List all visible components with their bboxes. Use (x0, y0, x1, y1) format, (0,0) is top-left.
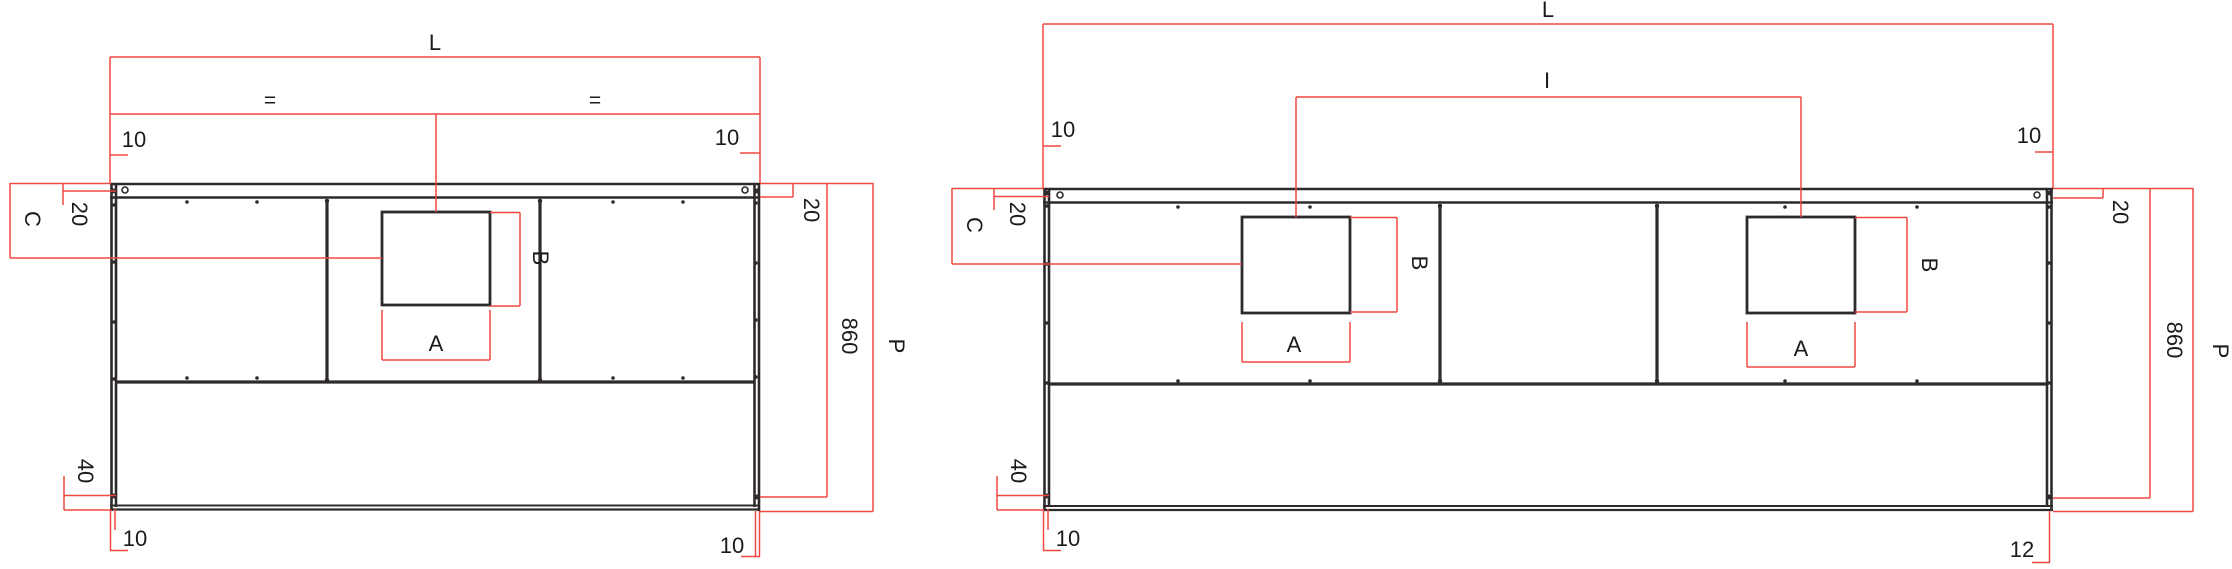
right-view-dimension-lines (952, 24, 2193, 563)
dim-label-equal-left: = (264, 89, 276, 112)
dim-label-length: L (1542, 0, 1554, 22)
dim-label-offset-bottom-right: 12 (2010, 537, 2034, 562)
dim-label-edge-right: 20 (799, 198, 824, 222)
dim-label-cutout2-height: B (1917, 258, 1942, 273)
dim-label-edge-left: 20 (1005, 202, 1030, 226)
right-view: L I 10 10 20 C B A B A 40 10 12 860 P 20 (952, 0, 2232, 563)
dim-label-bottom-margin: 40 (1006, 459, 1031, 483)
dim-label-cutout-width: A (429, 331, 444, 356)
dim-label-height-860: 860 (837, 318, 862, 355)
dim-label-edge-right: 20 (2108, 200, 2133, 224)
dim-label-offset-top-right: 10 (2017, 123, 2041, 148)
dim-label-equal-right: = (589, 89, 601, 112)
panel-dimension-drawing: L = = 10 10 20 C B A 40 10 10 860 P 20 (0, 0, 2232, 569)
dim-label-offset-top-left: 10 (1051, 117, 1075, 142)
right-panel-frame (1043, 188, 2053, 511)
dim-label-offset-bottom-left: 10 (123, 526, 147, 551)
left-panel-cutout (382, 212, 490, 305)
dim-label-cutout1-height: B (1407, 256, 1432, 271)
dim-label-edge-left: 20 (67, 202, 92, 226)
dim-label-length: L (429, 30, 441, 55)
dim-label-c: C (962, 217, 987, 233)
dim-label-c: C (20, 211, 45, 227)
dim-label-bottom-margin: 40 (73, 459, 98, 483)
left-view-labels: L = = 10 10 20 C B A 40 10 10 860 P 20 (20, 30, 909, 558)
dim-label-spacing-i: I (1544, 68, 1550, 93)
right-view-labels: L I 10 10 20 C B A B A 40 10 12 860 P 20 (962, 0, 2232, 562)
dim-label-offset-top-right: 10 (715, 125, 739, 150)
dim-label-offset-bottom-left: 10 (1056, 526, 1080, 551)
dim-label-offset-bottom-right: 10 (720, 533, 744, 558)
dim-label-cutout2-width: A (1794, 336, 1809, 361)
technical-drawing-canvas: L = = 10 10 20 C B A 40 10 10 860 P 20 (0, 0, 2232, 569)
dim-label-depth-p: P (2208, 344, 2232, 359)
dim-label-height-860: 860 (2162, 322, 2187, 359)
left-view: L = = 10 10 20 C B A 40 10 10 860 P 20 (10, 30, 909, 558)
right-panel-cutout-1 (1242, 217, 1350, 313)
dim-label-offset-top-left: 10 (122, 127, 146, 152)
dim-label-depth-p: P (884, 339, 909, 354)
right-panel-holes (1044, 191, 2053, 500)
dim-label-cutout1-width: A (1287, 332, 1302, 357)
dim-label-cutout-height: B (528, 251, 553, 266)
right-panel-cutout-2 (1747, 217, 1855, 313)
right-panel-dividers (1049, 204, 2047, 384)
